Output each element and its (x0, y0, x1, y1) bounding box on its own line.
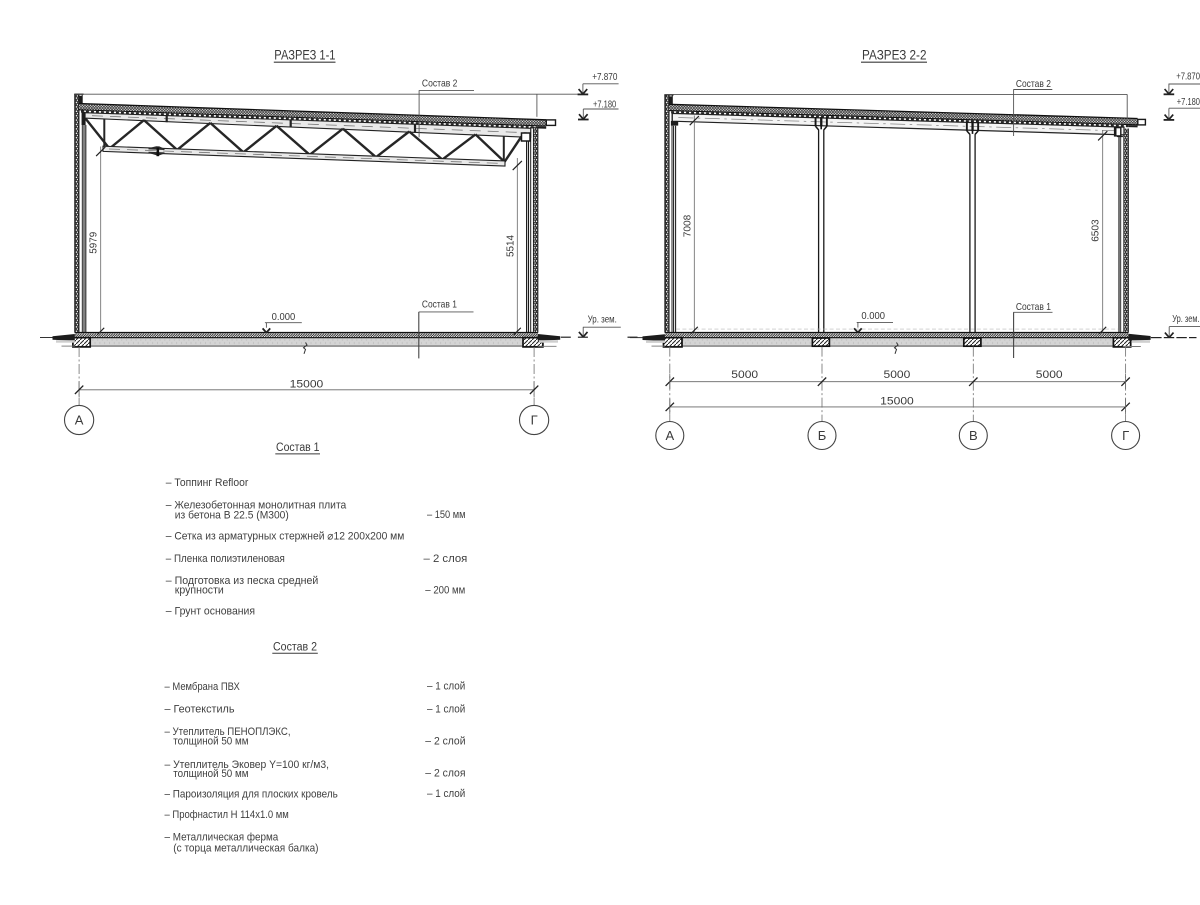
svg-text:РАЗРЕЗ 2-2: РАЗРЕЗ 2-2 (862, 47, 927, 62)
svg-text:– 2 слоя: – 2 слоя (424, 553, 468, 565)
svg-text:5000: 5000 (1036, 369, 1063, 381)
svg-text:РАЗРЕЗ 1-1: РАЗРЕЗ 1-1 (274, 47, 335, 62)
svg-text:Ур. зем.: Ур. зем. (1172, 314, 1199, 325)
svg-text:А: А (75, 413, 84, 428)
svg-text:крупности: крупности (175, 585, 224, 597)
svg-text:Г: Г (531, 413, 538, 428)
svg-text:А: А (665, 428, 674, 443)
svg-text:Состав 1: Состав 1 (422, 298, 457, 310)
svg-text:В: В (969, 428, 978, 443)
svg-text:толщиной 50 мм: толщиной 50 мм (173, 768, 248, 780)
svg-text:15000: 15000 (290, 379, 324, 391)
svg-text:– Топпинг Refloor: – Топпинг Refloor (166, 477, 249, 489)
svg-text:0.000: 0.000 (861, 310, 885, 322)
svg-text:– Пароизоляция для плоских кро: – Пароизоляция для плоских кровель (165, 789, 338, 801)
svg-text:Г: Г (1122, 428, 1129, 443)
svg-text:толщиной 50 мм: толщиной 50 мм (173, 736, 248, 748)
svg-text:– 200 мм: – 200 мм (425, 584, 465, 596)
svg-text:– 1 слой: – 1 слой (427, 788, 465, 800)
svg-text:Б: Б (818, 428, 827, 443)
svg-text:+7.180: +7.180 (1177, 97, 1200, 108)
svg-text:+7.870: +7.870 (1176, 72, 1200, 83)
svg-text:(с торца металлическая балка): (с торца металлическая балка) (173, 842, 318, 854)
svg-text:Состав 2: Состав 2 (273, 642, 317, 654)
svg-text:5000: 5000 (884, 369, 911, 381)
svg-text:– Пленка полиэтиленовая: – Пленка полиэтиленовая (166, 553, 285, 565)
svg-text:+7.870: +7.870 (592, 72, 617, 83)
svg-text:5000: 5000 (731, 369, 758, 381)
svg-text:– Грунт основания: – Грунт основания (166, 606, 255, 618)
svg-text:– 1 слой: – 1 слой (427, 703, 465, 715)
svg-text:5514: 5514 (505, 235, 516, 257)
svg-text:6503: 6503 (1091, 219, 1102, 242)
svg-text:– 2 слоя: – 2 слоя (425, 768, 465, 780)
svg-text:– Геотекстиль: – Геотекстиль (165, 704, 235, 716)
svg-text:Состав 1: Состав 1 (276, 442, 320, 454)
svg-text:5979: 5979 (89, 231, 100, 253)
svg-text:– 2 слой: – 2 слой (425, 735, 465, 747)
svg-text:из бетона В 22.5 (М300): из бетона В 22.5 (М300) (175, 510, 289, 522)
svg-text:Ур. зем.: Ур. зем. (588, 314, 617, 325)
svg-text:Состав 1: Состав 1 (1016, 301, 1051, 313)
svg-text:0.000: 0.000 (272, 311, 296, 323)
svg-text:Состав 2: Состав 2 (422, 78, 458, 90)
svg-text:– Мембрана ПВХ: – Мембрана ПВХ (165, 681, 241, 693)
svg-text:– 150 мм: – 150 мм (427, 509, 466, 521)
svg-text:15000: 15000 (880, 395, 914, 407)
svg-text:Состав 2: Состав 2 (1016, 78, 1051, 90)
svg-text:– Сетка из арматурных стержней: – Сетка из арматурных стержней ⌀12 200x2… (166, 530, 404, 542)
svg-text:7008: 7008 (682, 214, 693, 237)
svg-text:– Профнастил Н 114x1.0 мм: – Профнастил Н 114x1.0 мм (165, 809, 289, 821)
svg-text:– 1 слой: – 1 слой (427, 680, 465, 692)
